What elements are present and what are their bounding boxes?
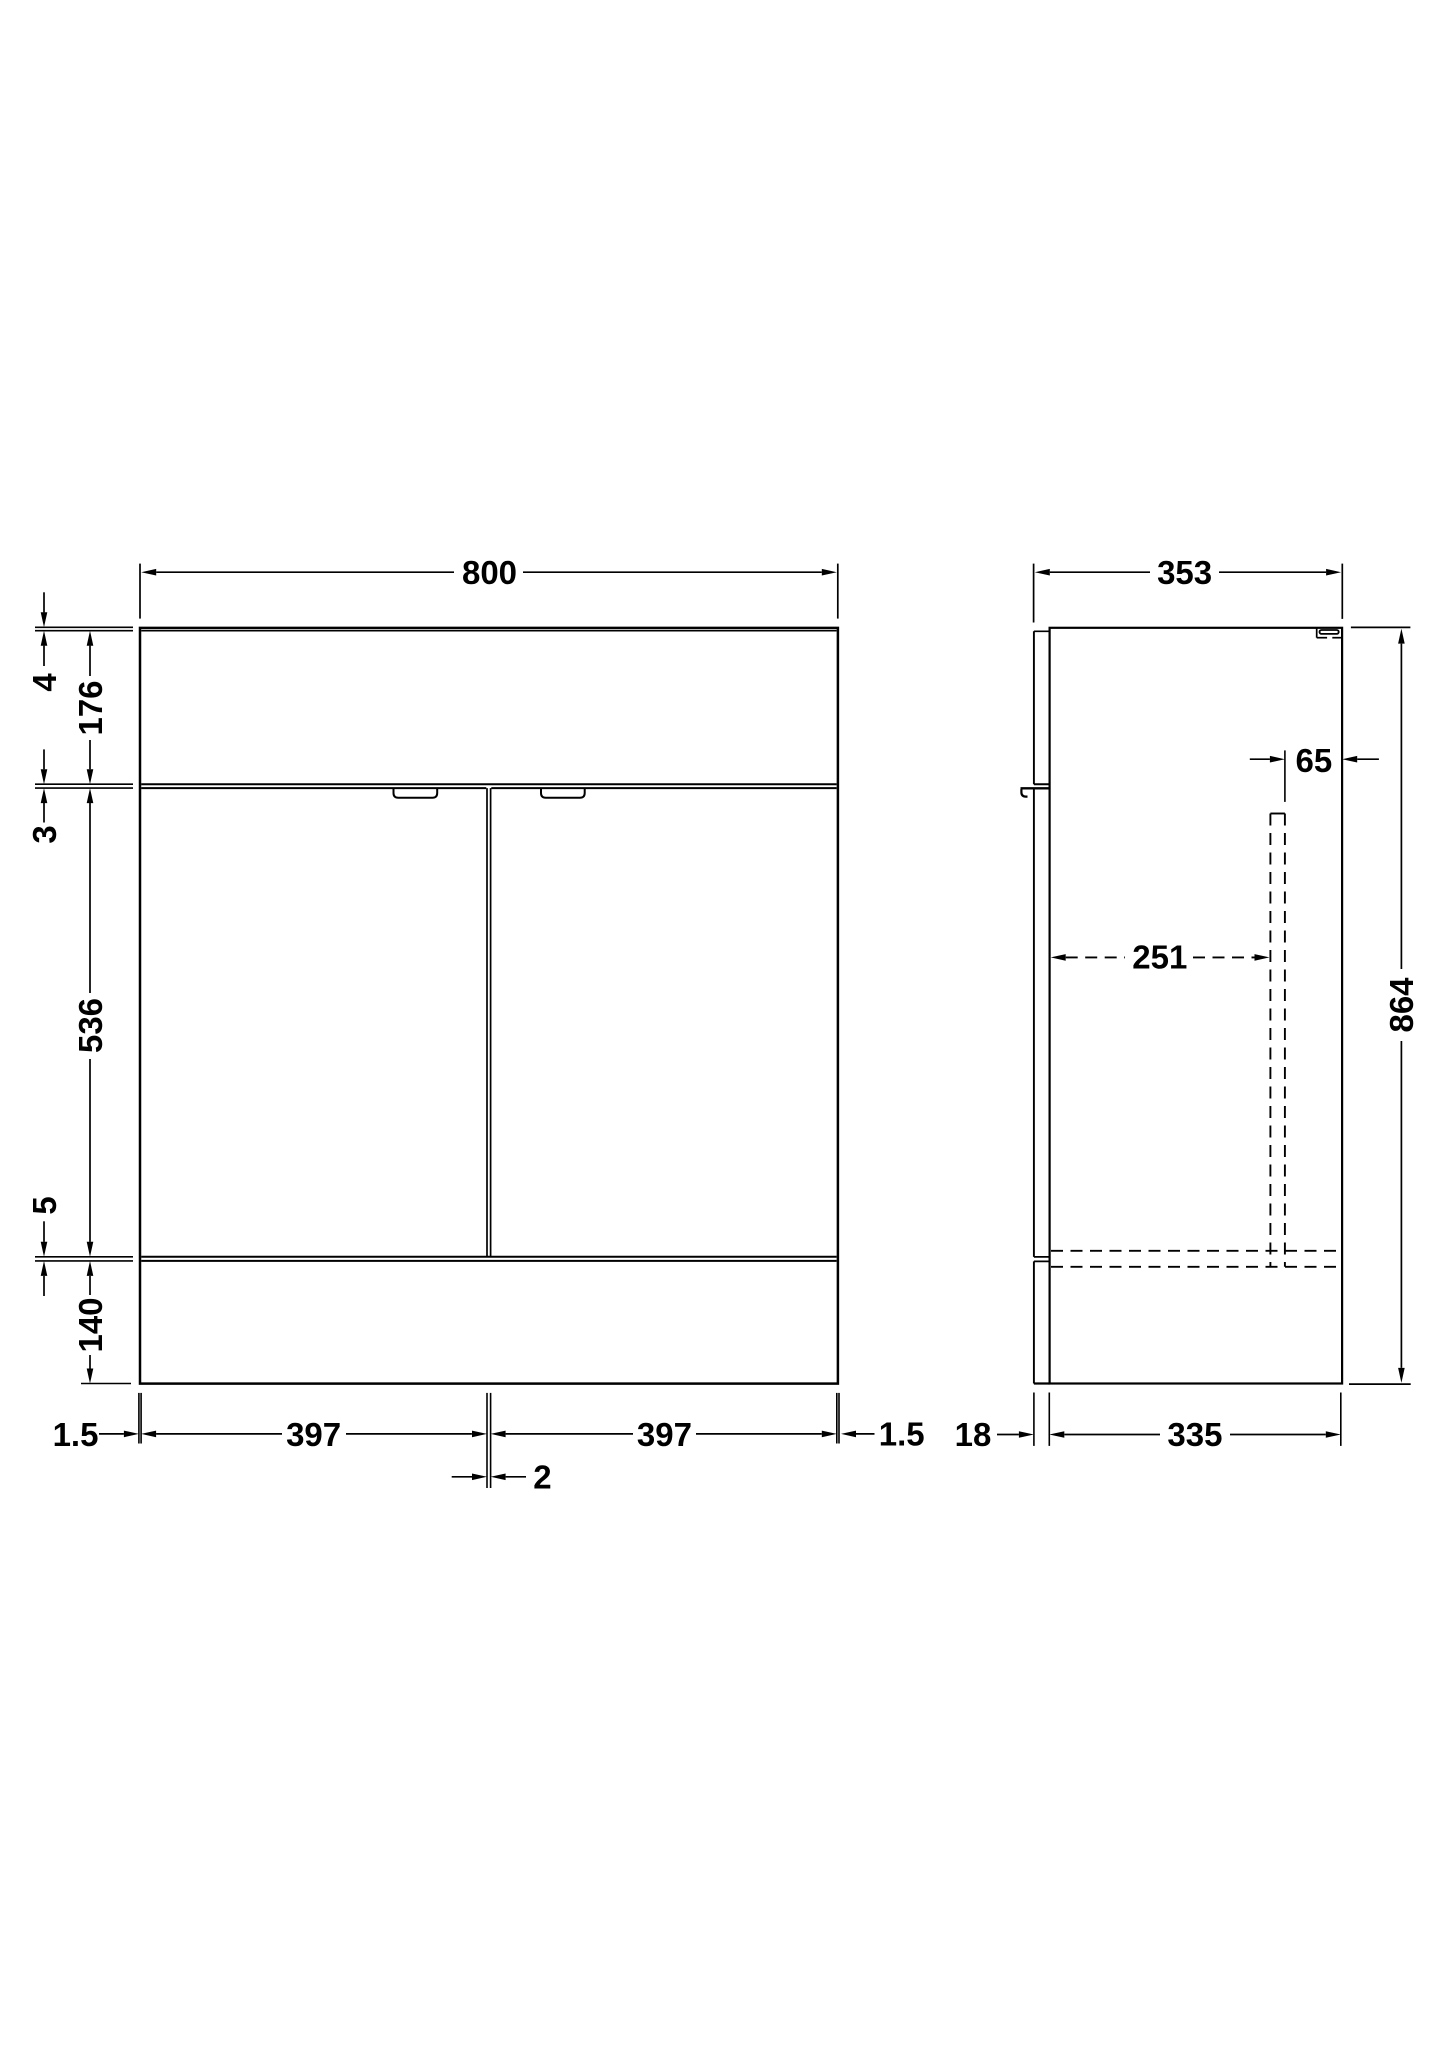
svg-text:353: 353 (1157, 554, 1212, 591)
svg-text:176: 176 (72, 680, 109, 735)
svg-text:864: 864 (1383, 977, 1420, 1033)
svg-text:3: 3 (26, 825, 63, 843)
svg-text:4: 4 (26, 673, 63, 692)
svg-text:397: 397 (637, 1416, 692, 1453)
svg-text:1.5: 1.5 (879, 1416, 925, 1453)
svg-text:1.5: 1.5 (53, 1416, 99, 1453)
svg-text:65: 65 (1296, 742, 1333, 779)
svg-text:397: 397 (286, 1416, 341, 1453)
svg-text:536: 536 (72, 998, 109, 1053)
svg-text:5: 5 (26, 1196, 63, 1214)
svg-text:335: 335 (1167, 1416, 1222, 1453)
svg-text:140: 140 (72, 1297, 109, 1352)
svg-text:800: 800 (462, 554, 517, 591)
svg-text:2: 2 (533, 1458, 551, 1495)
svg-text:251: 251 (1132, 939, 1187, 976)
svg-text:18: 18 (955, 1416, 992, 1453)
